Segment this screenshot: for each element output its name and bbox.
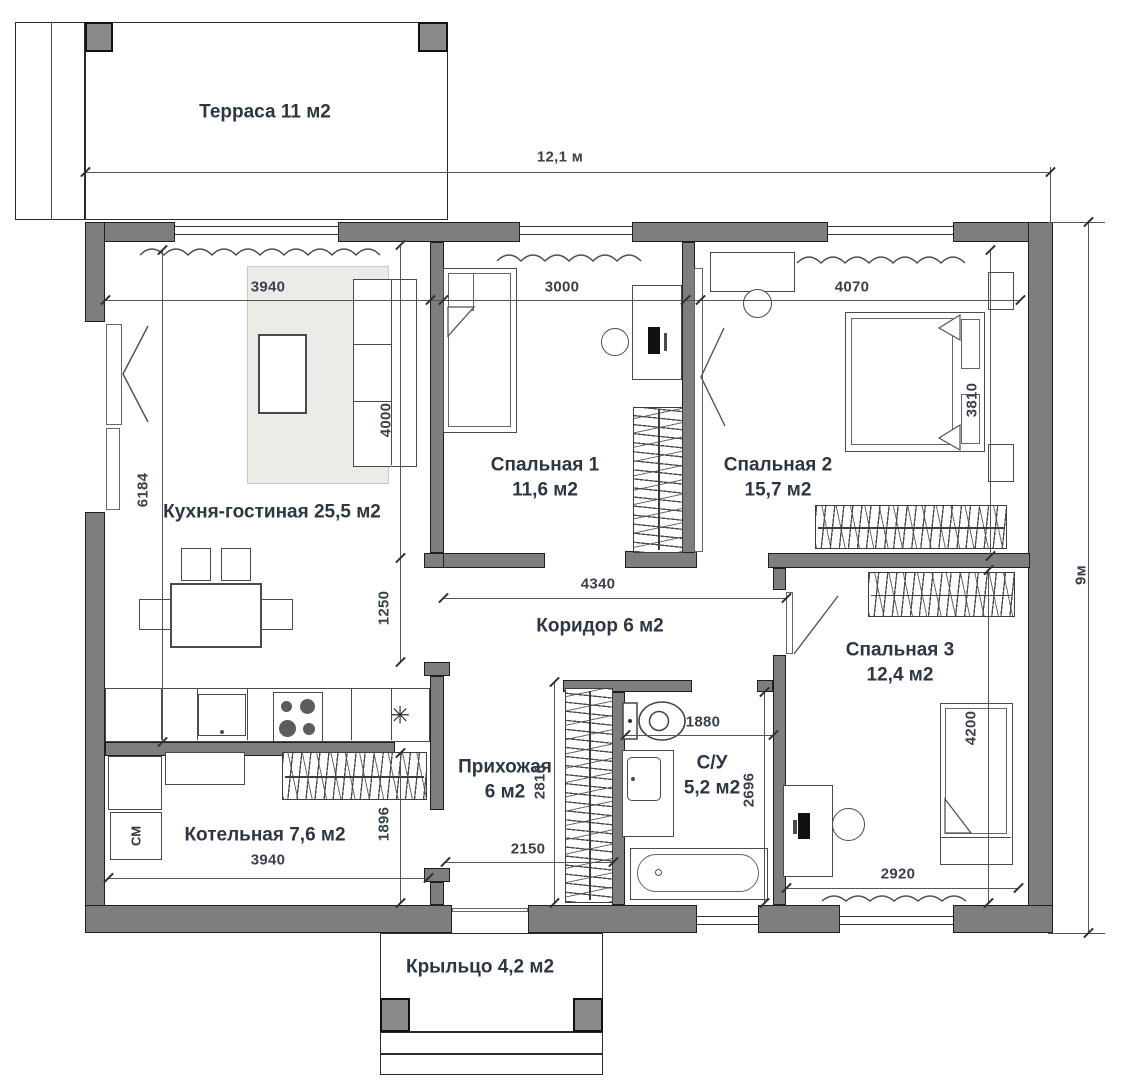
dim-label: 3940: [251, 852, 286, 869]
burner: [281, 701, 292, 712]
room-label-bedroom2: Спальная 2 15,7 м2: [724, 453, 833, 502]
window-curtain-wave: [820, 890, 980, 906]
counter-divider: [351, 689, 352, 740]
wardrobe-hatched: [815, 505, 1007, 549]
dim-guide: [1048, 222, 1105, 223]
window: [828, 226, 953, 235]
wall: [758, 905, 840, 933]
shelf: [165, 752, 245, 785]
dim-label-overall-depth: 9м: [1073, 565, 1090, 585]
dim-line: [400, 245, 401, 662]
dim-label: 3940: [251, 279, 286, 296]
burner: [303, 723, 315, 735]
dim-line: [554, 682, 555, 903]
room-name: С/У: [684, 751, 740, 776]
dim-label: 2816: [532, 765, 549, 800]
dim-label: 4070: [835, 279, 870, 296]
dim-line: [400, 753, 401, 903]
wall: [338, 222, 520, 242]
desk: [710, 252, 795, 292]
toilet-icon: [622, 698, 690, 744]
dim-guide: [1048, 933, 1105, 934]
room-label-terrace: Терраса 11 м2: [199, 101, 331, 126]
bathtub: [630, 848, 768, 900]
dining-chair: [261, 599, 293, 630]
porch-step: [380, 1032, 603, 1054]
dim-label: 4200: [963, 711, 980, 746]
kitchen-sink: [198, 694, 246, 736]
wall: [773, 568, 786, 590]
desk-chair: [743, 289, 772, 318]
room-name: Спальная 1: [491, 453, 600, 478]
wall: [85, 512, 105, 933]
dim-line: [990, 250, 991, 556]
door-swing: [698, 326, 730, 428]
room-label-corridor: Коридор 6 м2: [536, 615, 664, 640]
floor-plan: ✳ СМ: [0, 0, 1141, 1080]
dim-label: 1896: [376, 807, 393, 842]
porch-column: [573, 998, 603, 1032]
room-label-boiler: Котельная 7,6 м2: [184, 824, 345, 849]
blanket-fold: [447, 306, 477, 338]
dim-label: 3810: [964, 383, 981, 418]
dim-label: 3000: [545, 279, 580, 296]
dim-label: 2920: [881, 866, 916, 883]
dim-label: 4000: [378, 403, 395, 438]
room-name: Спальная 2: [724, 453, 833, 478]
nightstand: [988, 444, 1014, 482]
porch-step: [380, 1054, 603, 1075]
bed: [443, 268, 517, 433]
monitor: [798, 813, 810, 839]
dim-line: [764, 692, 765, 903]
room-label-bedroom3: Спальная 3 12,4 м2: [846, 638, 955, 687]
nightstand: [988, 272, 1014, 310]
counter-divider: [247, 689, 248, 740]
wall: [430, 676, 444, 810]
dim-label: 1880: [686, 714, 721, 731]
room-label-bedroom1: Спальная 1 11,6 м2: [491, 453, 600, 502]
dim-label: 2150: [511, 841, 546, 858]
wall: [443, 553, 545, 568]
dim-line: [625, 735, 773, 736]
dim-line: [162, 250, 163, 742]
room-label-porch: Крыльцо 4,2 м2: [406, 956, 554, 981]
monitor-stand: [793, 820, 797, 834]
desk-chair: [601, 328, 629, 356]
coffee-table: [258, 334, 307, 414]
dim-label-overall-width: 12,1 м: [537, 149, 583, 166]
wardrobe-hatched: [565, 688, 613, 903]
burner: [300, 699, 315, 714]
dim-line: [108, 878, 428, 879]
entrance-threshold: [452, 908, 528, 912]
wall: [430, 242, 444, 553]
wall: [430, 882, 444, 905]
wardrobe-hatched: [282, 752, 427, 800]
kitchen-counter: [105, 688, 430, 742]
wall: [528, 905, 697, 933]
dim-line: [105, 300, 1020, 301]
room-area: 15,7 м2: [724, 478, 833, 503]
room-area: 11,6 м2: [491, 478, 600, 503]
door-sidelight: [106, 428, 120, 510]
terrace-column: [418, 22, 448, 52]
dim-label: 2696: [741, 773, 758, 808]
wall: [1028, 222, 1053, 933]
wall: [85, 222, 105, 322]
cabinet: [108, 756, 162, 810]
wardrobe-hatched: [633, 407, 683, 553]
monitor-stand: [664, 333, 667, 351]
window-curtain-wave: [795, 250, 979, 268]
washing-machine-label: СМ: [129, 826, 144, 846]
dining-chair: [221, 548, 251, 581]
window: [175, 226, 338, 235]
blanket-fold: [938, 314, 962, 342]
bed-pillow: [961, 319, 980, 369]
dim-line: [988, 570, 989, 903]
wall: [85, 905, 452, 933]
dining-table: [170, 583, 262, 648]
dim-line: [85, 172, 1051, 173]
window: [520, 226, 632, 235]
door-swing: [120, 322, 154, 426]
room-area: 12,4 м2: [846, 663, 955, 688]
wall: [424, 662, 450, 676]
dim-label: 6184: [135, 473, 152, 508]
wall: [625, 551, 697, 568]
sink-drain: [220, 730, 224, 734]
window-curtain-wave: [495, 248, 655, 266]
dim-guide: [1050, 167, 1051, 222]
sofa-line: [354, 344, 391, 345]
burner: [279, 720, 296, 737]
terrace-column: [85, 22, 113, 52]
porch-outline: [380, 933, 603, 1032]
bed-footline: [941, 837, 1011, 838]
dim-line: [786, 888, 1018, 889]
blanket-fold: [938, 424, 962, 452]
blanket-fold: [944, 798, 974, 836]
door-swing: [788, 592, 844, 658]
bathtub-drain: [655, 869, 662, 876]
dining-chair: [181, 548, 211, 581]
snowflake-icon: ✳: [390, 702, 410, 731]
room-label-bathroom: С/У 5,2 м2: [684, 751, 740, 800]
room-area: 5,2 м2: [684, 776, 740, 801]
wall: [632, 222, 828, 242]
desk-chair: [832, 808, 865, 841]
porch-column: [380, 998, 410, 1032]
monitor: [648, 327, 660, 354]
sofa: [353, 279, 417, 467]
room-label-kitchen-living: Кухня-гостиная 25,5 м2: [163, 501, 381, 526]
wardrobe-hatched: [868, 572, 1015, 617]
bathroom-sink: [627, 757, 661, 801]
room-name: Спальная 3: [846, 638, 955, 663]
dim-line: [445, 862, 613, 863]
dim-line: [443, 598, 786, 599]
window: [840, 916, 953, 925]
dining-chair: [139, 599, 171, 630]
dim-label: 1250: [376, 591, 393, 626]
window: [697, 916, 758, 925]
wall: [953, 905, 1053, 933]
dim-label: 4340: [581, 576, 616, 593]
terrace-deck-line: [51, 22, 52, 220]
terrace-side-deck: [15, 22, 85, 220]
window-curtain-wave: [138, 242, 394, 260]
faucet-dot: [631, 777, 635, 781]
